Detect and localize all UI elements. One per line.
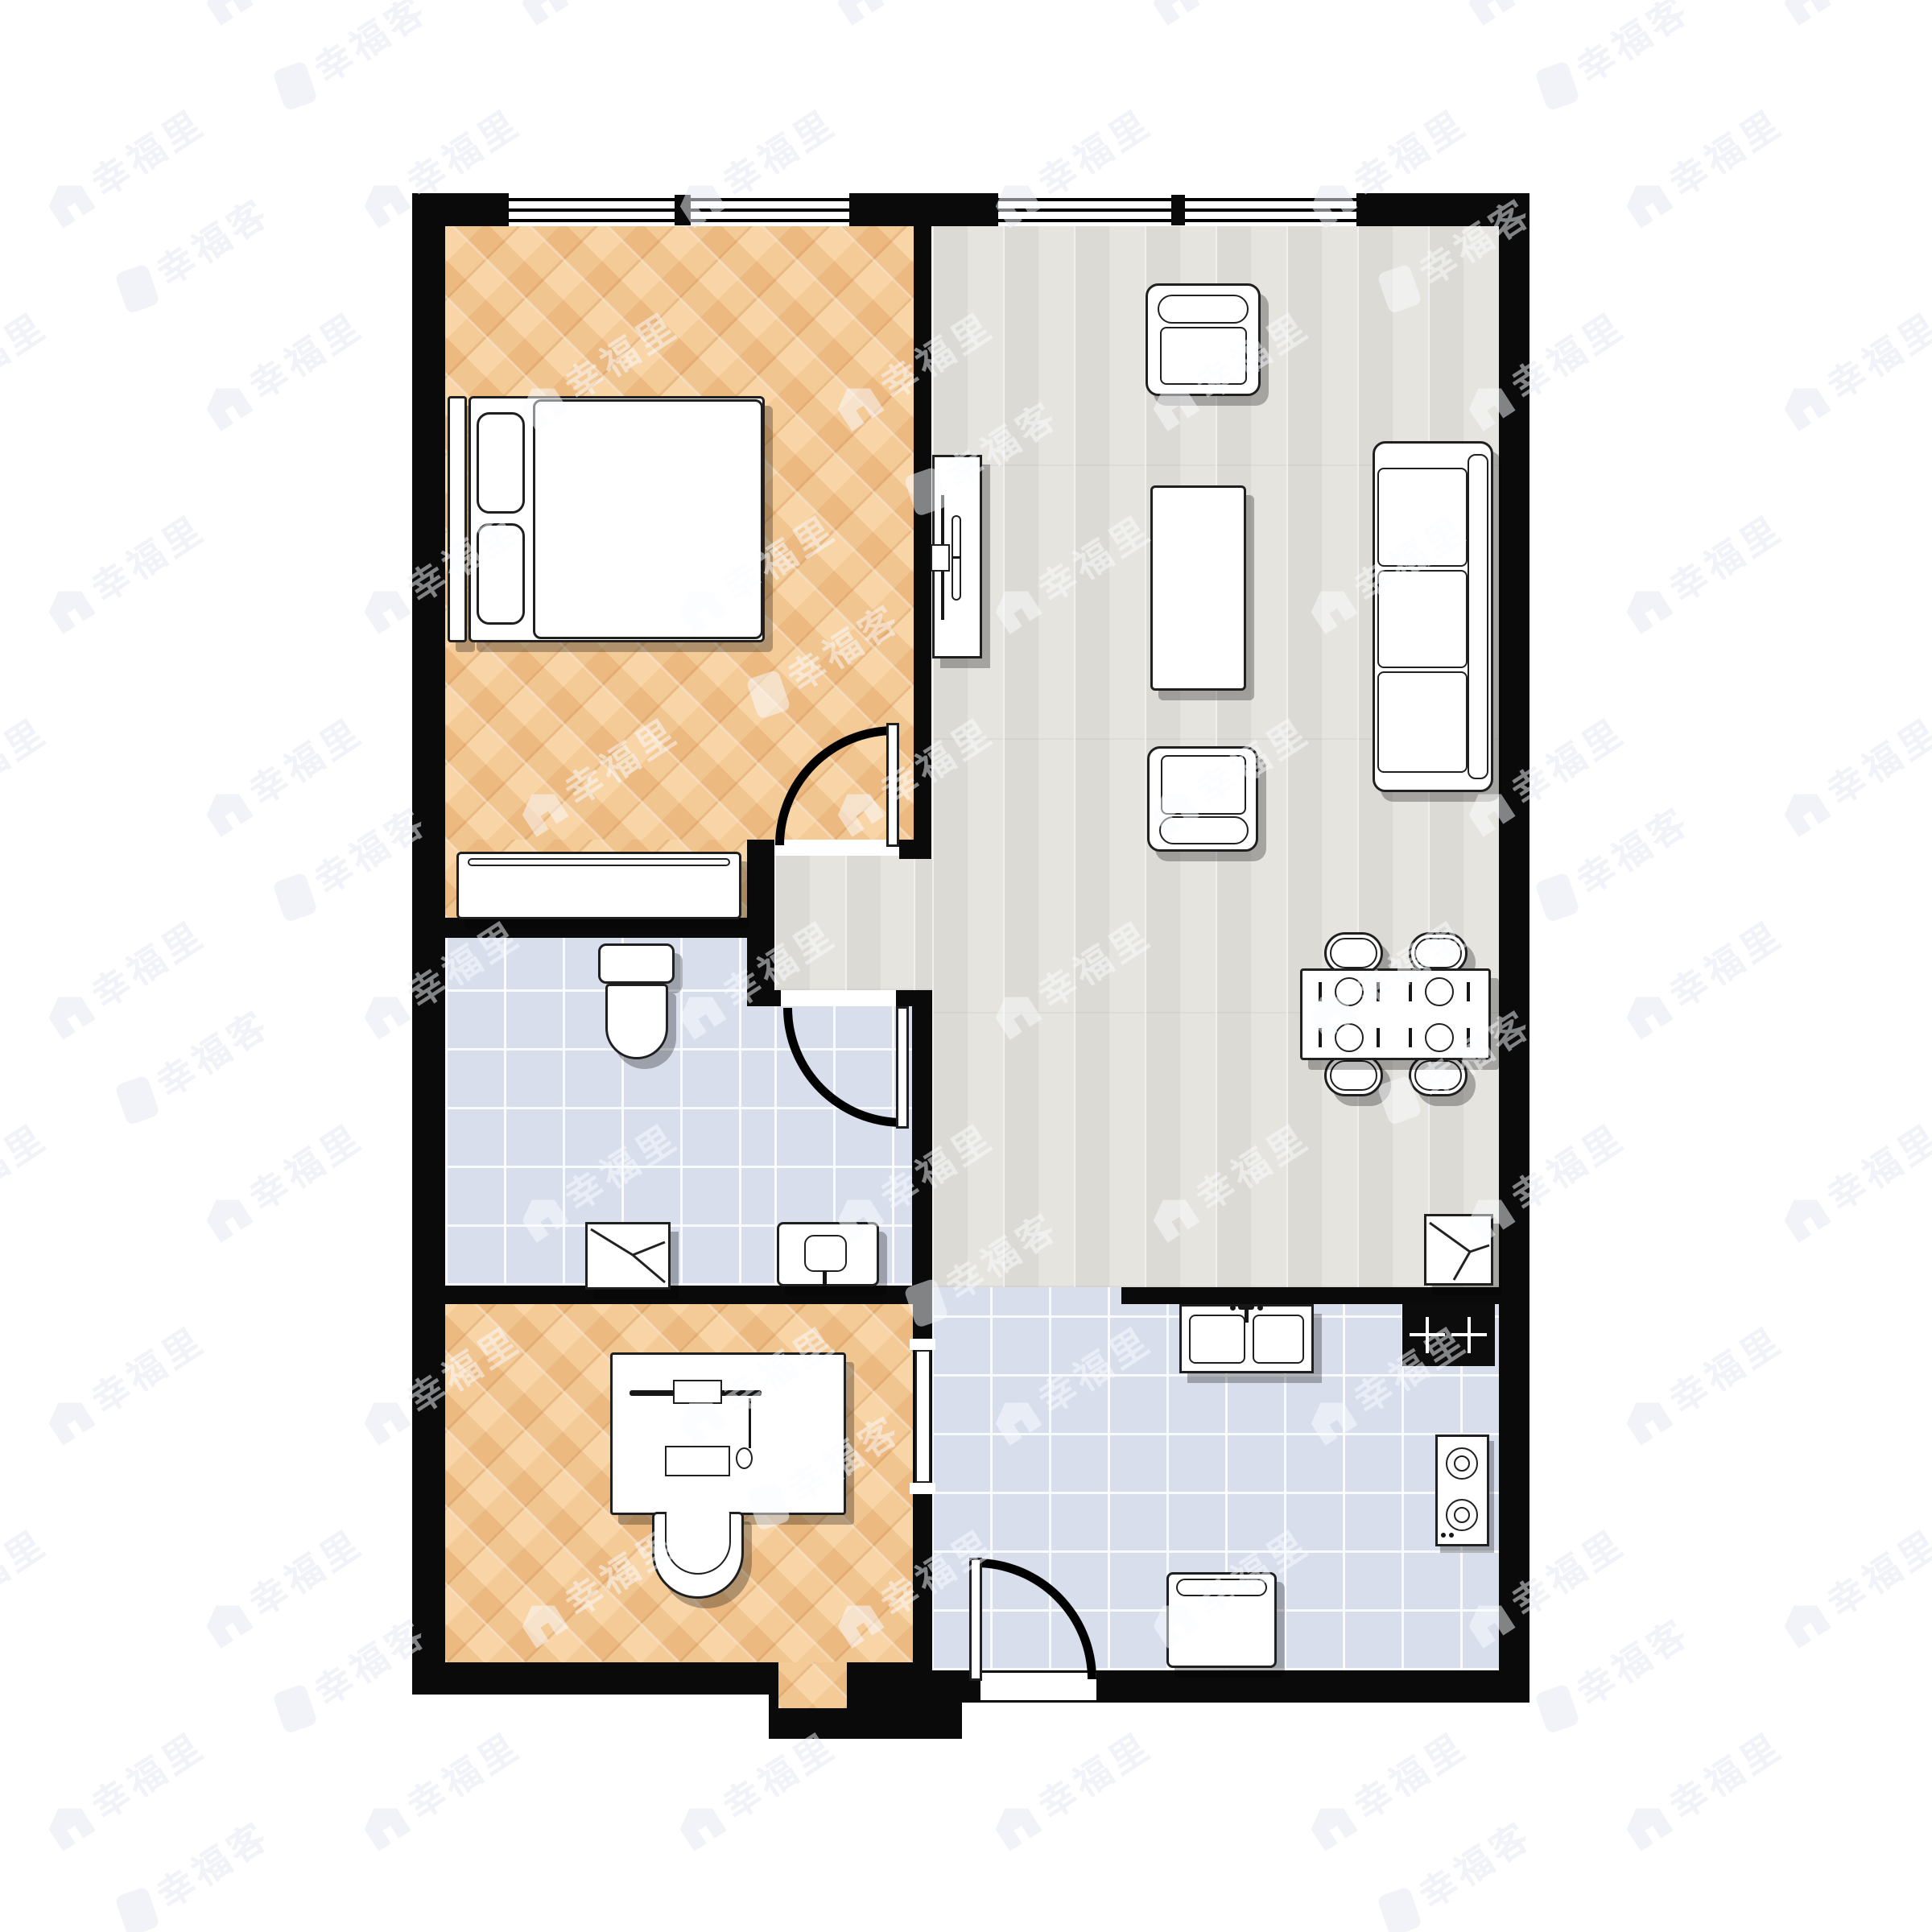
washbasin-faucet: [823, 1270, 827, 1286]
desk: [610, 1352, 846, 1515]
dresser-handle-line: [468, 858, 730, 866]
place-setting-plate: [1425, 977, 1454, 1006]
sink-faucet-stem: [1245, 1310, 1249, 1323]
bed-pillow-2: [477, 523, 525, 625]
corner-cabinet-lines: [1426, 1216, 1491, 1283]
cutlery: [1409, 982, 1412, 1001]
hob-knob: [1449, 1533, 1454, 1538]
dining-chair-inner: [1414, 1060, 1462, 1091]
wall-kitchen-top: [1121, 1287, 1499, 1304]
keyboard: [665, 1446, 730, 1476]
wall-bedroom-living-divider: [914, 226, 931, 840]
toilet-bowl: [605, 984, 668, 1059]
cutlery: [1467, 1028, 1470, 1047]
sink-faucet: [1238, 1304, 1254, 1310]
bedroom-window-mullion: [675, 195, 691, 225]
sofa-backrest: [1468, 454, 1488, 779]
sink-basin-left: [1189, 1315, 1245, 1364]
mouse: [736, 1447, 753, 1469]
wall-bathroom-right: [912, 1006, 932, 1304]
armchair-bottom-back-cushion: [1159, 816, 1249, 844]
floor-hallway: [774, 856, 914, 990]
dining-chair-inner: [1330, 1060, 1377, 1091]
hob-knob: [1441, 1533, 1446, 1538]
bed-duvet: [533, 399, 763, 639]
dining-table: [1300, 968, 1491, 1060]
wall-study-bottom: [412, 1662, 778, 1695]
hob-burner-center: [1454, 1455, 1470, 1472]
floor-plan: [0, 0, 1932, 1932]
monitor-stand: [673, 1380, 722, 1404]
cutlery: [1409, 1028, 1412, 1047]
armchair-top-back-cushion: [1158, 295, 1249, 324]
sofa-seat-1: [1377, 468, 1468, 567]
hob-burner-center: [1454, 1507, 1470, 1523]
corner-cabinet: [1424, 1214, 1493, 1286]
dining-chair-4: [1409, 1055, 1468, 1096]
wall-right: [1499, 193, 1529, 1701]
washbasin-bowl: [804, 1235, 847, 1272]
bedroom-door-leaf: [886, 723, 899, 847]
study-door-jamb-top: [910, 1339, 935, 1350]
bathroom-door-leaf: [896, 1006, 909, 1129]
sofa-seat-2: [1377, 570, 1468, 668]
cutlery: [1377, 1028, 1380, 1047]
sink-knob: [1257, 1305, 1263, 1311]
dining-chair-3: [1324, 1055, 1383, 1096]
dining-chair-inner: [1330, 938, 1377, 968]
soundbar-line: [953, 556, 960, 559]
coffee-table: [1150, 485, 1246, 691]
sink-knob: [1230, 1305, 1236, 1311]
wall-top-mid-block: [849, 193, 998, 226]
place-setting-plate: [1425, 1023, 1454, 1052]
bed-pillow-1: [477, 412, 525, 514]
wall-notch-side: [847, 1662, 913, 1695]
cutlery: [1467, 982, 1470, 1001]
wall-bathroom-bottom: [412, 1286, 932, 1304]
dining-chair-inner: [1414, 938, 1462, 968]
living-window-mullion: [1171, 195, 1185, 225]
study-door-leaf-closed: [915, 1350, 931, 1483]
cooktop-burner-cross: [1410, 1333, 1445, 1336]
cutlery: [1319, 982, 1322, 1001]
page: 幸福里幸福里幸福客幸福里幸福里幸福里幸福里幸福客幸福里幸福里幸福里幸福客幸福里幸…: [0, 0, 1932, 1932]
sink-basin-right: [1253, 1315, 1304, 1364]
armchair-bottom-seat: [1161, 755, 1246, 815]
bed-headboard: [448, 396, 467, 642]
wall-bathroom-door-left: [747, 990, 781, 1006]
wall-left: [412, 193, 445, 1695]
media-box: [931, 544, 950, 572]
wall-bedroom-bathroom: [412, 918, 747, 938]
entry-door-leaf: [969, 1558, 982, 1681]
sofa-seat-3: [1377, 671, 1468, 773]
shower-tray-lines: [588, 1224, 668, 1287]
shower-tray: [585, 1222, 671, 1290]
cooktop-burner-cross: [1451, 1333, 1487, 1336]
cutlery: [1377, 982, 1380, 1001]
floor-study-notch: [778, 1662, 847, 1708]
place-setting-plate: [1335, 1023, 1364, 1052]
wall-divider-end: [899, 840, 931, 859]
mouse-cable: [749, 1398, 751, 1448]
place-setting-plate: [1335, 977, 1364, 1006]
toilet-tank: [598, 943, 675, 984]
armchair-top-seat: [1160, 327, 1247, 385]
wall-jog: [747, 840, 774, 1006]
floor-hallway-strip: [914, 859, 932, 990]
study-door-jamb-bottom: [910, 1483, 935, 1494]
wall-bathroom-door-right: [896, 990, 932, 1006]
cutlery: [1319, 1028, 1322, 1047]
washing-machine-panel: [1176, 1579, 1267, 1596]
